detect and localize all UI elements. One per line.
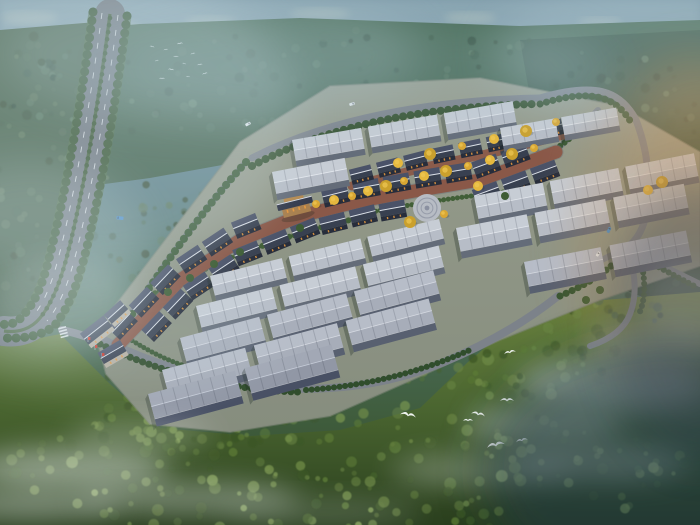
plaza-center (425, 206, 430, 211)
tree-canopy (104, 403, 114, 413)
tree-canopy (193, 449, 200, 456)
gold-tree-highlight (553, 119, 557, 123)
tree-canopy (486, 391, 494, 399)
gold-tree-highlight (313, 201, 317, 205)
circular-plaza (413, 194, 441, 222)
tree-canopy (220, 432, 228, 440)
gold-tree-highlight (459, 143, 463, 147)
tree-canopy (451, 517, 459, 525)
gold-tree-highlight (426, 150, 431, 155)
tree-canopy (520, 345, 527, 352)
mist-cloud (220, 500, 420, 524)
tree-canopy (286, 433, 298, 445)
gold-tree-highlight (406, 218, 411, 223)
tree-canopy (410, 491, 418, 499)
tree-canopy (549, 330, 553, 334)
tree-canopy (368, 486, 372, 490)
tree-canopy (179, 445, 186, 452)
tree-canopy (409, 439, 413, 443)
tree-canopy (351, 477, 361, 487)
tree-canopy (425, 438, 430, 443)
tree-canopy (256, 457, 265, 466)
tree-canopy (296, 461, 306, 471)
tree-canopy (469, 498, 474, 503)
tree-canopy (422, 504, 432, 514)
tree-canopy (335, 483, 344, 492)
tree-canopy (169, 449, 175, 455)
tree-canopy (377, 452, 386, 461)
gold-tree-highlight (395, 160, 400, 165)
tree-canopy (170, 466, 176, 472)
tree-canopy (542, 345, 553, 356)
tree-canopy (424, 437, 436, 449)
tree-canopy (346, 456, 357, 467)
tree-canopy (272, 474, 277, 479)
tree-canopy (468, 376, 476, 384)
gold-tree-highlight (442, 167, 447, 172)
tree-canopy (208, 467, 213, 472)
tree-canopy (186, 462, 191, 467)
tree-canopy (352, 471, 357, 476)
tree-canopy (443, 487, 453, 497)
tree-canopy (466, 516, 475, 525)
tree-canopy (218, 443, 224, 449)
tree-canopy (57, 435, 64, 442)
tree-canopy (463, 501, 469, 507)
gold-tree-highlight (508, 150, 513, 155)
tree-canopy (229, 448, 238, 457)
tree-canopy (39, 440, 46, 447)
gold-tree-highlight (522, 127, 527, 132)
tree-canopy (323, 477, 328, 482)
gold-tree-highlight (365, 188, 370, 193)
green-tree (501, 192, 509, 200)
tree-canopy (400, 401, 410, 411)
tree-canopy (244, 433, 249, 438)
tree-canopy (336, 413, 345, 422)
gold-tree-highlight (475, 183, 480, 188)
tree-canopy (502, 374, 509, 381)
gold-tree-highlight (401, 178, 405, 182)
gold-tree-highlight (382, 182, 387, 187)
tree-canopy (238, 434, 245, 441)
gold-tree-highlight (465, 163, 469, 167)
gold-tree-highlight (487, 157, 492, 162)
tree-canopy (454, 501, 464, 511)
tree-canopy (354, 420, 362, 428)
gold-tree-highlight (531, 145, 535, 149)
tree-canopy (513, 382, 520, 389)
gold-tree-highlight (349, 193, 353, 197)
tree-canopy (571, 332, 577, 338)
tree-canopy (532, 346, 537, 351)
gold-tree-highlight (491, 136, 496, 141)
gold-tree-highlight (441, 211, 445, 215)
tree-canopy (270, 481, 276, 487)
tree-canopy (483, 349, 492, 358)
tree-canopy (325, 433, 334, 442)
tree-canopy (482, 380, 489, 387)
tree-canopy (265, 465, 274, 474)
tree-canopy (209, 449, 220, 460)
tree-canopy (517, 373, 524, 380)
tree-canopy (477, 496, 481, 500)
tree-canopy (319, 494, 323, 498)
tree-canopy (108, 414, 116, 422)
tree-canopy (260, 428, 270, 438)
aerial-rendering (0, 0, 700, 525)
gold-tree-highlight (421, 173, 426, 178)
green-tree (236, 248, 244, 256)
tree-canopy (479, 509, 490, 520)
tree-canopy (456, 509, 465, 518)
tree-canopy (227, 441, 233, 447)
tree-canopy (390, 442, 395, 447)
tree-canopy (248, 438, 257, 447)
tree-canopy (453, 363, 463, 373)
tree-canopy (257, 439, 262, 444)
tree-canopy (447, 381, 456, 390)
tree-canopy (316, 439, 322, 445)
tree-canopy (340, 468, 344, 472)
tree-canopy (315, 476, 320, 481)
aerial-rendering-stage: Bird's-eye 3D rendering of a hillside lo… (0, 0, 700, 525)
tree-canopy (395, 425, 400, 430)
tree-canopy (358, 408, 368, 418)
tree-canopy (298, 469, 310, 481)
green-tree (296, 224, 304, 232)
tree-canopy (473, 370, 479, 376)
tree-canopy (342, 491, 351, 500)
tree-canopy (568, 345, 579, 356)
tree-canopy (17, 442, 21, 446)
tree-canopy (189, 457, 193, 461)
gold-tree-highlight (331, 197, 336, 202)
tree-canopy (447, 414, 458, 425)
tree-canopy (365, 476, 376, 487)
tree-canopy (469, 354, 478, 363)
green-tree (210, 260, 218, 268)
mist-cloud (70, 422, 210, 448)
tree-canopy (461, 442, 470, 451)
